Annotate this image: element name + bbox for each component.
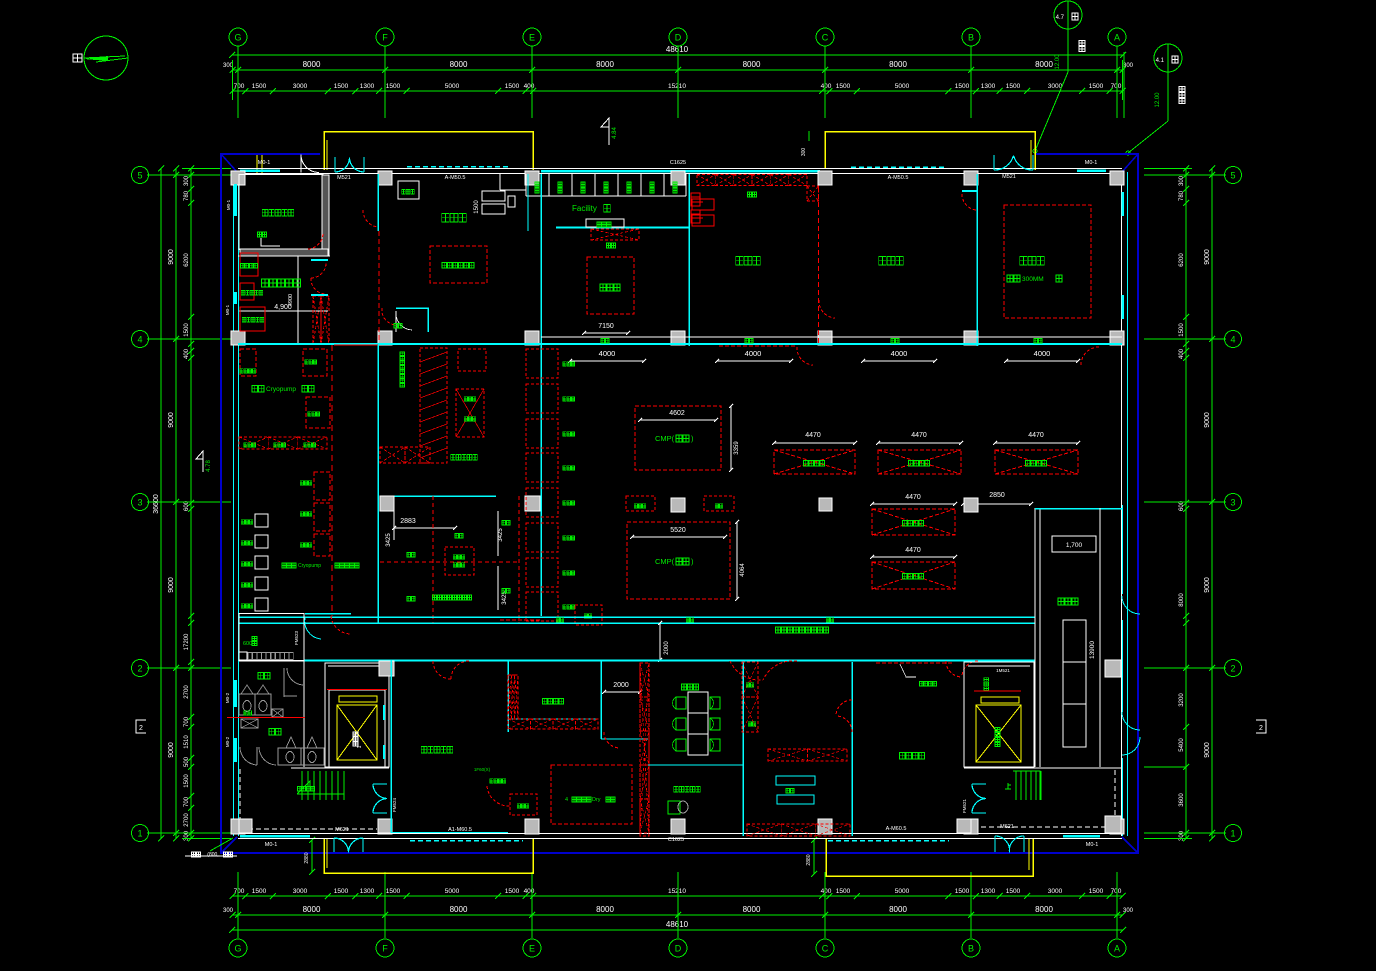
svg-text:4064: 4064 (740, 563, 746, 577)
svg-text:M0-2: M0-2 (225, 692, 230, 703)
svg-text:1300: 1300 (981, 83, 996, 90)
svg-text:1500: 1500 (955, 83, 970, 90)
svg-text:9000: 9000 (1204, 249, 1211, 265)
svg-text:2: 2 (1259, 725, 1263, 732)
svg-text:4900: 4900 (288, 294, 294, 306)
svg-text:500: 500 (184, 756, 190, 767)
svg-text:A: A (1114, 944, 1120, 954)
svg-text:1500: 1500 (505, 888, 520, 895)
svg-text:3000: 3000 (1048, 888, 1063, 895)
svg-text:5: 5 (137, 171, 142, 181)
svg-text:4.84: 4.84 (612, 127, 618, 139)
svg-text:4000: 4000 (599, 349, 616, 358)
svg-text:700: 700 (1111, 888, 1122, 895)
svg-text:C1625: C1625 (668, 837, 684, 843)
svg-text:300: 300 (1123, 908, 1134, 914)
svg-text:CMP(: CMP( (655, 434, 675, 443)
svg-text:M0-1: M0-1 (226, 199, 231, 210)
svg-text:6200: 6200 (1179, 253, 1185, 267)
svg-text:600: 600 (243, 641, 252, 647)
svg-text:12.00: 12.00 (1155, 92, 1161, 108)
svg-text:M0-1: M0-1 (225, 304, 230, 315)
svg-text:1: 1 (1230, 829, 1235, 839)
svg-text:4470: 4470 (805, 432, 821, 439)
svg-text:3: 3 (137, 498, 142, 508)
svg-text:2883: 2883 (400, 518, 416, 525)
svg-text:Cryopump: Cryopump (298, 563, 321, 569)
svg-text:1500: 1500 (1006, 888, 1021, 895)
svg-text:9000: 9000 (168, 577, 175, 593)
svg-text:17200: 17200 (184, 633, 190, 650)
svg-text:4470: 4470 (905, 547, 921, 554)
svg-text:3425: 3425 (498, 528, 504, 542)
svg-text:3425: 3425 (386, 533, 392, 547)
svg-text:400: 400 (1179, 348, 1185, 359)
svg-text:1510: 1510 (184, 735, 190, 749)
svg-text:1500: 1500 (252, 83, 267, 90)
svg-text:A-M50.5: A-M50.5 (445, 175, 466, 181)
svg-text:4602: 4602 (669, 410, 685, 417)
svg-text:700: 700 (184, 796, 190, 807)
svg-text:4000: 4000 (745, 349, 762, 358)
svg-text:Cryopump: Cryopump (266, 386, 296, 393)
svg-text:15210: 15210 (668, 888, 686, 895)
svg-text:2: 2 (139, 725, 143, 732)
svg-text:5: 5 (1230, 171, 1235, 181)
svg-text:1500: 1500 (334, 83, 349, 90)
svg-text:9000: 9000 (168, 742, 175, 758)
svg-text:1500: 1500 (505, 83, 520, 90)
svg-text:5000: 5000 (895, 888, 910, 895)
svg-text:1500: 1500 (184, 323, 190, 337)
svg-text:300MM: 300MM (1022, 276, 1044, 283)
svg-text:8000: 8000 (889, 60, 907, 69)
svg-text:2000: 2000 (613, 682, 629, 689)
svg-text:5000: 5000 (895, 83, 910, 90)
svg-text:M0-1: M0-1 (1086, 842, 1099, 848)
svg-text:B: B (968, 944, 974, 954)
svg-text:700: 700 (234, 83, 245, 90)
svg-text:1300: 1300 (360, 888, 375, 895)
svg-text:3000: 3000 (293, 888, 308, 895)
svg-text:2000: 2000 (664, 641, 670, 655)
svg-text:C1625: C1625 (670, 160, 686, 166)
svg-text:G: G (234, 944, 241, 954)
svg-text:48610: 48610 (666, 920, 689, 929)
svg-text:9000: 9000 (168, 249, 175, 265)
svg-text:700: 700 (234, 888, 245, 895)
svg-text:9000: 9000 (168, 412, 175, 428)
svg-text:4.7: 4.7 (1056, 15, 1065, 21)
svg-text:M521: M521 (1002, 174, 1016, 180)
svg-text:5400: 5400 (1179, 738, 1185, 752)
svg-text:8000: 8000 (1179, 593, 1185, 607)
svg-text:3359: 3359 (734, 441, 740, 455)
svg-text:FM524: FM524 (392, 798, 397, 813)
svg-text:400: 400 (524, 83, 535, 90)
svg-text:300: 300 (1123, 63, 1134, 69)
svg-text:4000: 4000 (891, 349, 908, 358)
svg-text:36600: 36600 (153, 494, 160, 514)
svg-text:1500: 1500 (1089, 83, 1104, 90)
svg-text:2880: 2880 (806, 854, 812, 865)
svg-text:4000: 4000 (1034, 349, 1051, 358)
svg-text:8000: 8000 (596, 905, 614, 914)
svg-text:300: 300 (1179, 175, 1185, 186)
svg-text:4: 4 (1230, 335, 1235, 345)
svg-text:1500: 1500 (1006, 83, 1021, 90)
svg-text:CMP(: CMP( (655, 557, 675, 566)
svg-text:8000: 8000 (450, 60, 468, 69)
svg-text:9000: 9000 (1204, 577, 1211, 593)
svg-text:3200: 3200 (1179, 693, 1185, 707)
svg-text:8000: 8000 (596, 60, 614, 69)
svg-text:M621: M621 (335, 827, 349, 833)
svg-text:A-M60.5: A-M60.5 (886, 826, 907, 832)
svg-text:7150: 7150 (598, 323, 614, 330)
svg-text:5000: 5000 (445, 83, 460, 90)
svg-text:3600: 3600 (1179, 793, 1185, 807)
svg-text:4470: 4470 (905, 494, 921, 501)
svg-text:6200: 6200 (184, 253, 190, 267)
svg-text:400: 400 (821, 888, 832, 895)
svg-text:780: 780 (1179, 190, 1185, 201)
svg-text:3: 3 (1230, 498, 1235, 508)
svg-text:C: C (822, 944, 829, 954)
svg-text:8000: 8000 (1035, 905, 1053, 914)
svg-text:8000: 8000 (450, 905, 468, 914)
svg-text:D: D (675, 33, 682, 43)
svg-text:1300: 1300 (360, 83, 375, 90)
svg-text:B: B (968, 33, 974, 43)
svg-text:15210: 15210 (668, 83, 686, 90)
svg-text:2700: 2700 (184, 685, 190, 699)
svg-text:8000: 8000 (743, 905, 761, 914)
svg-text:(800,: (800, (207, 852, 218, 858)
svg-text:1500: 1500 (955, 888, 970, 895)
svg-text:8000: 8000 (303, 905, 321, 914)
svg-text:4.1: 4.1 (1156, 58, 1165, 64)
svg-text:1500: 1500 (836, 83, 851, 90)
svg-text:1,700: 1,700 (1066, 542, 1083, 549)
svg-text:300: 300 (223, 908, 234, 914)
svg-text:1300: 1300 (981, 888, 996, 895)
svg-text:1500: 1500 (184, 774, 190, 788)
svg-text:400: 400 (524, 888, 535, 895)
svg-text:G: G (234, 33, 241, 43)
svg-text:1500: 1500 (1179, 323, 1185, 337)
svg-text:8000: 8000 (1035, 60, 1053, 69)
svg-text:2: 2 (1230, 664, 1235, 674)
svg-text:1500: 1500 (836, 888, 851, 895)
svg-text:2: 2 (137, 664, 142, 674)
svg-text:5520: 5520 (670, 527, 686, 534)
svg-text:1M521: 1M521 (996, 668, 1010, 673)
svg-text:D: D (675, 944, 682, 954)
svg-text:8000: 8000 (743, 60, 761, 69)
svg-text:C: C (822, 33, 829, 43)
svg-text:1F60(X): 1F60(X) (474, 767, 491, 772)
svg-text:13900: 13900 (1089, 641, 1096, 659)
svg-text:12.00: 12.00 (1055, 54, 1061, 70)
svg-text:8000: 8000 (303, 60, 321, 69)
svg-text:300: 300 (801, 148, 807, 157)
svg-text:1500: 1500 (252, 888, 267, 895)
svg-text:4470: 4470 (1028, 432, 1044, 439)
svg-text:Dry: Dry (592, 797, 601, 803)
svg-text:M0-2: M0-2 (225, 736, 230, 747)
svg-text:FM523: FM523 (294, 631, 299, 646)
svg-text:3000: 3000 (293, 83, 308, 90)
svg-text:1500: 1500 (334, 888, 349, 895)
svg-text:M0-1: M0-1 (265, 842, 278, 848)
svg-text:8000: 8000 (889, 905, 907, 914)
svg-text:4470: 4470 (911, 432, 927, 439)
svg-text:1500: 1500 (386, 83, 401, 90)
svg-text:M521: M521 (337, 175, 351, 181)
svg-text:A: A (1114, 33, 1120, 43)
svg-text:M0-1: M0-1 (1085, 160, 1098, 166)
svg-text:9000: 9000 (1204, 742, 1211, 758)
svg-text:780: 780 (184, 190, 190, 201)
svg-text:2880: 2880 (304, 852, 310, 863)
svg-text:Facility: Facility (572, 204, 597, 213)
svg-text:5000: 5000 (445, 888, 460, 895)
svg-text:1500: 1500 (1089, 888, 1104, 895)
svg-text:A-M50.5: A-M50.5 (888, 175, 909, 181)
svg-text:1500: 1500 (474, 200, 480, 214)
svg-text:M0-1: M0-1 (258, 160, 271, 166)
svg-text:4: 4 (565, 797, 568, 803)
svg-text:400: 400 (184, 348, 190, 359)
svg-text:F: F (382, 944, 388, 954)
svg-text:300: 300 (1179, 830, 1185, 841)
svg-text:1500: 1500 (386, 888, 401, 895)
svg-text:E: E (529, 33, 535, 43)
svg-text:F: F (382, 33, 388, 43)
svg-text:700: 700 (184, 716, 190, 727)
svg-text:2700: 2700 (184, 813, 190, 827)
svg-text:E: E (529, 944, 535, 954)
svg-text:700: 700 (1111, 83, 1122, 90)
svg-text:2850: 2850 (989, 492, 1005, 499)
svg-text:300: 300 (184, 830, 190, 841)
svg-text:400: 400 (821, 83, 832, 90)
svg-text:1: 1 (137, 829, 142, 839)
svg-text:4.78: 4.78 (206, 460, 212, 472)
svg-text:300: 300 (184, 175, 190, 186)
svg-text:9000: 9000 (1204, 412, 1211, 428)
svg-text:4: 4 (137, 335, 142, 345)
svg-text:FM521: FM521 (962, 799, 967, 814)
